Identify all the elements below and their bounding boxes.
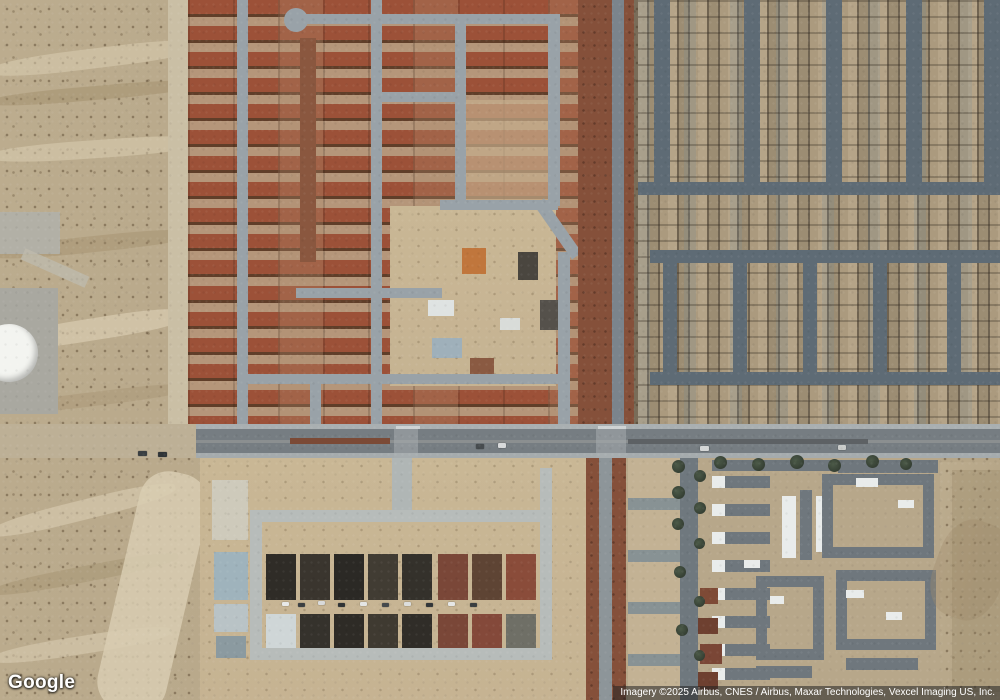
- construction-road: [540, 468, 552, 660]
- tree: [672, 460, 685, 473]
- street: [371, 92, 463, 102]
- house-under-construction: [472, 554, 502, 600]
- tree: [694, 502, 706, 514]
- apartment-roof-white: [856, 478, 878, 487]
- foundation-slab: [214, 552, 248, 600]
- house-under-construction: [334, 554, 364, 600]
- street: [248, 374, 562, 384]
- house-under-construction: [368, 614, 398, 648]
- house-under-construction: [266, 614, 296, 648]
- tree: [828, 459, 841, 472]
- house-under-construction: [540, 300, 560, 330]
- gravel-pad: [0, 212, 60, 254]
- construction-road: [250, 510, 552, 522]
- street: [733, 250, 747, 385]
- crosswalk: [396, 426, 420, 429]
- crosswalk: [598, 426, 626, 429]
- street: [826, 0, 842, 186]
- apartment-roof-white: [898, 500, 914, 508]
- apartment-roof-white: [712, 504, 725, 516]
- vehicle: [838, 445, 846, 450]
- tree: [790, 455, 804, 469]
- street: [654, 0, 670, 186]
- vehicle: [282, 602, 289, 606]
- tree: [672, 486, 685, 499]
- house-under-construction: [438, 554, 468, 600]
- tree: [672, 518, 684, 530]
- residential-east: [638, 0, 1000, 424]
- apartment-courtyard: [836, 570, 936, 650]
- apartment-building: [838, 462, 938, 473]
- street: [455, 14, 466, 206]
- street: [947, 250, 961, 385]
- tree: [694, 470, 706, 482]
- foundation-slab: [214, 604, 248, 632]
- apartment-roof-white: [886, 612, 902, 620]
- foundation-slab: [432, 338, 462, 358]
- street: [803, 250, 817, 385]
- house-under-construction: [506, 554, 536, 600]
- street: [873, 250, 887, 385]
- median-road: [612, 0, 624, 424]
- vehicle: [448, 602, 455, 606]
- street: [288, 14, 556, 24]
- street: [237, 0, 248, 426]
- vehicle: [360, 602, 367, 606]
- street: [984, 0, 1000, 186]
- map-canvas[interactable]: Google Imagery ©2025 Airbus, CNES / Airb…: [0, 0, 1000, 700]
- tree: [694, 596, 705, 607]
- foundation-slab: [216, 636, 246, 658]
- tree: [714, 456, 727, 469]
- street: [638, 182, 1000, 195]
- dirt-road: [168, 0, 188, 426]
- street: [371, 0, 382, 426]
- house-under-construction: [368, 554, 398, 600]
- apartment-roof-white: [712, 476, 725, 488]
- house-under-construction: [518, 252, 538, 280]
- vehicle: [426, 603, 433, 607]
- landscaped-strip: [578, 0, 612, 424]
- median-path: [599, 458, 612, 700]
- tree: [900, 458, 912, 470]
- house-under-construction: [438, 614, 468, 648]
- house-under-construction: [334, 614, 364, 648]
- vehicle: [318, 601, 325, 605]
- vehicle: [382, 603, 389, 607]
- vehicle: [404, 602, 411, 606]
- tree: [694, 650, 705, 661]
- apartment-roof-white: [744, 560, 760, 568]
- house-under-construction: [300, 554, 330, 600]
- vehicle: [498, 443, 506, 448]
- foundation-slab: [428, 300, 454, 316]
- intersection: [394, 424, 418, 458]
- house-under-construction: [506, 614, 536, 648]
- street: [663, 250, 677, 385]
- foundation-slab: [212, 480, 248, 540]
- apartment-building: [846, 658, 918, 670]
- house-under-construction: [266, 554, 296, 600]
- imagery-attribution: Imagery ©2025 Airbus, CNES / Airbus, Max…: [613, 686, 1000, 700]
- street: [906, 0, 922, 186]
- house-under-construction: [462, 248, 486, 274]
- vehicle: [138, 451, 147, 456]
- desert-shading: [952, 470, 1000, 692]
- tree: [674, 566, 686, 578]
- tree: [752, 458, 765, 471]
- vehicle: [158, 452, 167, 457]
- vehicle: [470, 603, 477, 607]
- vehicle: [338, 603, 345, 607]
- vehicle: [700, 446, 709, 451]
- road-median-dark: [628, 439, 868, 444]
- vehicle: [298, 603, 305, 607]
- road-median-landscaped: [290, 438, 390, 444]
- construction-access-road: [392, 458, 412, 516]
- street: [310, 384, 321, 426]
- foundation-slab: [500, 318, 520, 330]
- tree: [866, 455, 879, 468]
- apartment-courtyard: [756, 576, 824, 660]
- street: [558, 252, 570, 426]
- house-under-construction: [300, 614, 330, 648]
- apartment-roof-white: [770, 596, 784, 604]
- street: [296, 288, 442, 298]
- outbuilding: [698, 618, 718, 634]
- apartment-roof-white: [712, 532, 725, 544]
- apartment-roof-white: [712, 560, 725, 572]
- house-under-construction: [402, 614, 432, 648]
- tree: [676, 624, 688, 636]
- google-logo[interactable]: Google: [8, 672, 75, 694]
- dirt-strip: [300, 38, 316, 262]
- house-under-construction: [402, 554, 432, 600]
- construction-road: [250, 648, 552, 660]
- apartment-courtyard: [822, 474, 934, 558]
- apartment-roof-white: [846, 590, 864, 598]
- vehicle: [476, 444, 484, 449]
- construction-road: [250, 510, 262, 660]
- construction-infill: [458, 100, 556, 204]
- tree: [694, 538, 705, 549]
- intersection: [596, 424, 626, 458]
- landscaped-strip: [624, 0, 634, 424]
- apartment-building: [800, 490, 812, 560]
- apartment-building: [756, 666, 812, 678]
- house-under-construction: [472, 614, 502, 648]
- apartment-roof-white: [782, 496, 796, 558]
- street: [548, 14, 560, 206]
- street: [744, 0, 760, 186]
